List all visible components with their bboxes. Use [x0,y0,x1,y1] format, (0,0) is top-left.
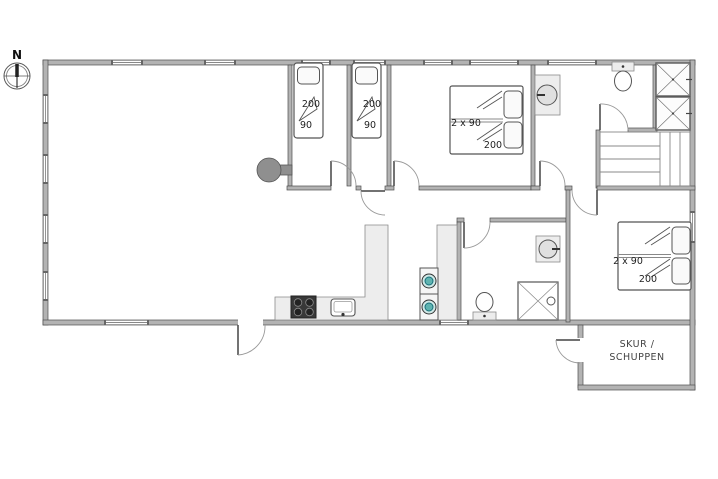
washbasin [535,75,560,115]
bed1-width-label: 90 [300,120,312,131]
shed-door-opening [578,338,584,362]
bed1-length-label: 200 [302,99,320,110]
compass-north-label: N [12,48,22,62]
bed2-length-label: 200 [363,99,381,110]
kitchen-sink [331,299,355,316]
bed3-size-label: 2 x 90 [451,118,481,129]
single-bed-2: 200 90 [352,63,381,138]
wardrobe [656,97,692,130]
shower [518,282,558,320]
bed4-length-label: 200 [639,274,657,285]
single-bed-1: 200 90 [294,63,323,138]
wardrobe [656,63,692,96]
floor-plan-page: 200 90 200 90 2 x 90 200 2 x 90 200 SKUR… [0,0,718,479]
kitchen-hob [291,296,316,318]
shed-label-line1: SKUR / [620,339,655,350]
floor-plan: 200 90 200 90 2 x 90 200 2 x 90 200 SKUR… [0,0,718,479]
double-bed-east: 2 x 90 200 [613,222,691,290]
terrace-door-opening [238,320,263,326]
bed4-size-label: 2 x 90 [613,256,643,267]
wardrobes [656,63,692,130]
shed-label-line2: SCHUPPEN [609,352,664,363]
washer-dryer-stack [420,268,438,320]
washbasin [536,236,560,262]
tall-cabinet [437,225,457,320]
bed3-length-label: 200 [484,140,502,151]
bed2-width-label: 90 [364,120,376,131]
double-bed-north: 2 x 90 200 [450,86,523,154]
